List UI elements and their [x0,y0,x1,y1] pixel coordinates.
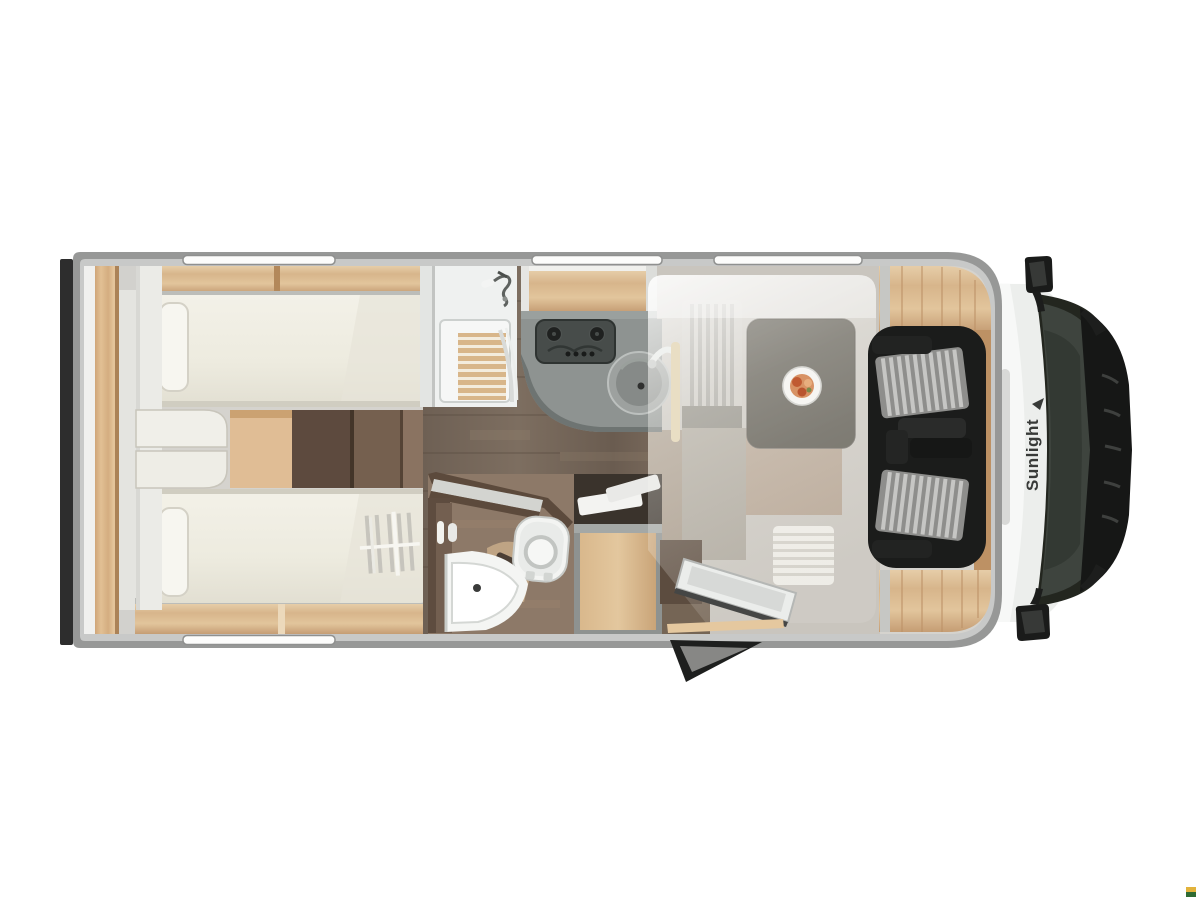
svg-text:Sunlight: Sunlight [1023,419,1042,491]
